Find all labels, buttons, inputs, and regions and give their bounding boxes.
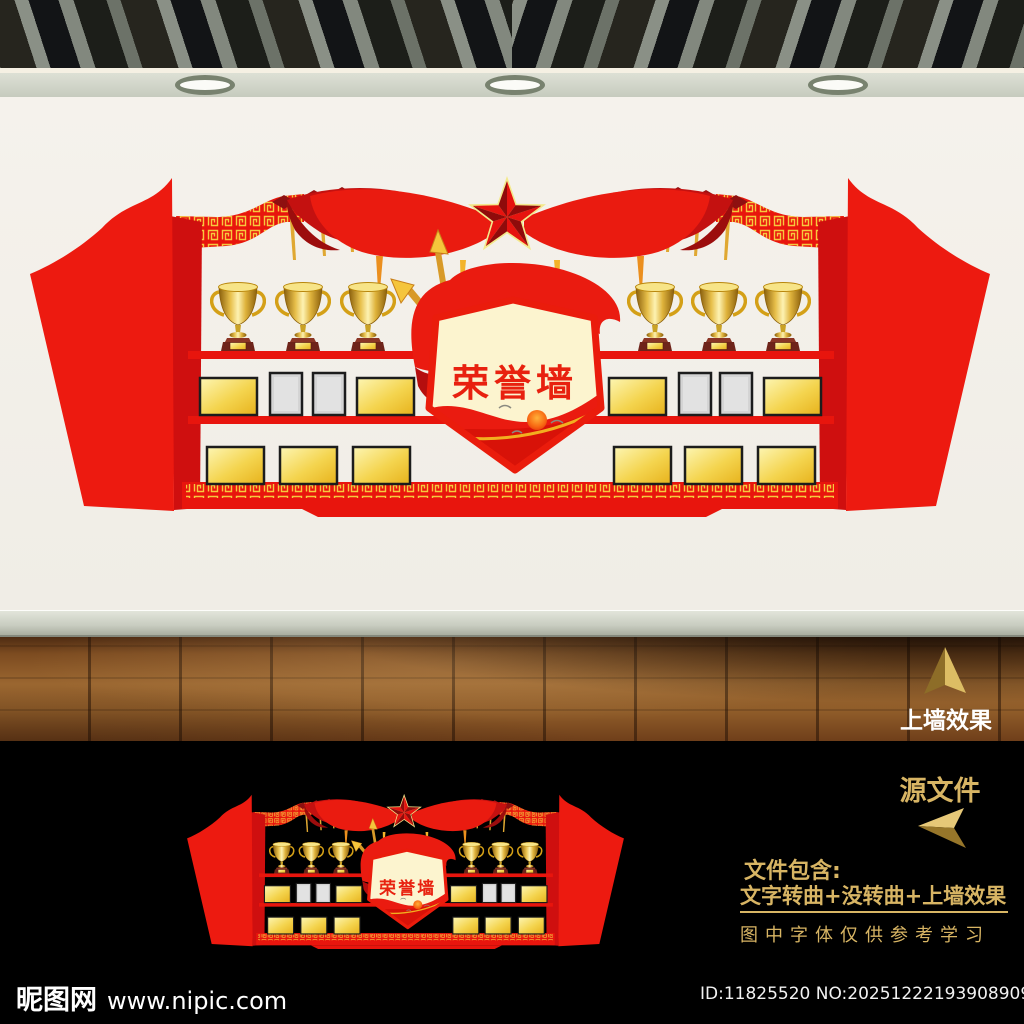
badge-title: 荣誉墙 bbox=[378, 878, 436, 898]
trophy-icon bbox=[518, 842, 542, 873]
divider-line bbox=[740, 911, 1008, 913]
floor-label: 上墙效果 bbox=[884, 701, 1008, 735]
trophy-icon bbox=[342, 283, 395, 352]
trophy-icon bbox=[270, 842, 294, 873]
base-bar bbox=[182, 482, 838, 517]
baseboard bbox=[0, 610, 1024, 637]
trophy-icon bbox=[299, 842, 323, 873]
badge: 荣誉墙 bbox=[391, 230, 620, 472]
trophy-icon bbox=[212, 283, 265, 352]
sun-icon bbox=[527, 410, 547, 430]
trophy-icon bbox=[277, 283, 330, 352]
honor-wall-design: 荣誉墙 bbox=[10, 172, 1010, 517]
trophy-icon bbox=[489, 842, 513, 873]
curtain-right bbox=[818, 178, 990, 511]
ceiling-slats bbox=[0, 0, 1024, 68]
honor-wall-design: 荣誉墙 bbox=[178, 792, 633, 949]
ceiling-slats-left bbox=[0, 0, 512, 68]
font-note: 图中字体仅供参考学习 bbox=[740, 921, 990, 947]
ceiling-slats-right bbox=[512, 0, 1024, 68]
trophy-icon bbox=[459, 842, 483, 873]
curtain-right bbox=[546, 795, 624, 947]
trophy-icon bbox=[629, 283, 682, 352]
badge-title: 荣誉墙 bbox=[452, 362, 578, 405]
source-file-label: 源文件 bbox=[860, 769, 1020, 808]
up-arrow-icon bbox=[920, 645, 970, 697]
trophy-icon bbox=[329, 842, 353, 873]
stage: 荣誉墙 上墙效果 bbox=[0, 0, 1024, 1024]
sun-icon bbox=[413, 900, 422, 909]
trophy-icon bbox=[757, 283, 810, 352]
site-name: 昵图网 bbox=[16, 978, 97, 1017]
recessed-light-icon bbox=[808, 75, 868, 95]
wood-floor bbox=[0, 637, 1024, 741]
honor-wall-design-preview: 荣誉墙 bbox=[178, 792, 633, 949]
site-url: www.nipic.com bbox=[107, 987, 287, 1015]
includes-content: 文字转曲+没转曲+上墙效果 bbox=[740, 880, 1006, 910]
banner-left bbox=[176, 187, 496, 292]
base-bar bbox=[256, 933, 554, 949]
recessed-light-icon bbox=[485, 75, 545, 95]
recessed-light-icon bbox=[175, 75, 235, 95]
badge: 荣誉墙 bbox=[351, 818, 455, 928]
trophy-icon bbox=[693, 283, 746, 352]
curtain-left bbox=[187, 795, 265, 947]
banner-left bbox=[254, 799, 400, 847]
image-id: ID:11825520 NO:20251222193908909100 bbox=[700, 984, 1012, 1004]
curtain-left bbox=[30, 178, 202, 511]
left-arrow-icon bbox=[916, 806, 968, 850]
watermark: 昵图网 www.nipic.com bbox=[16, 978, 287, 1017]
